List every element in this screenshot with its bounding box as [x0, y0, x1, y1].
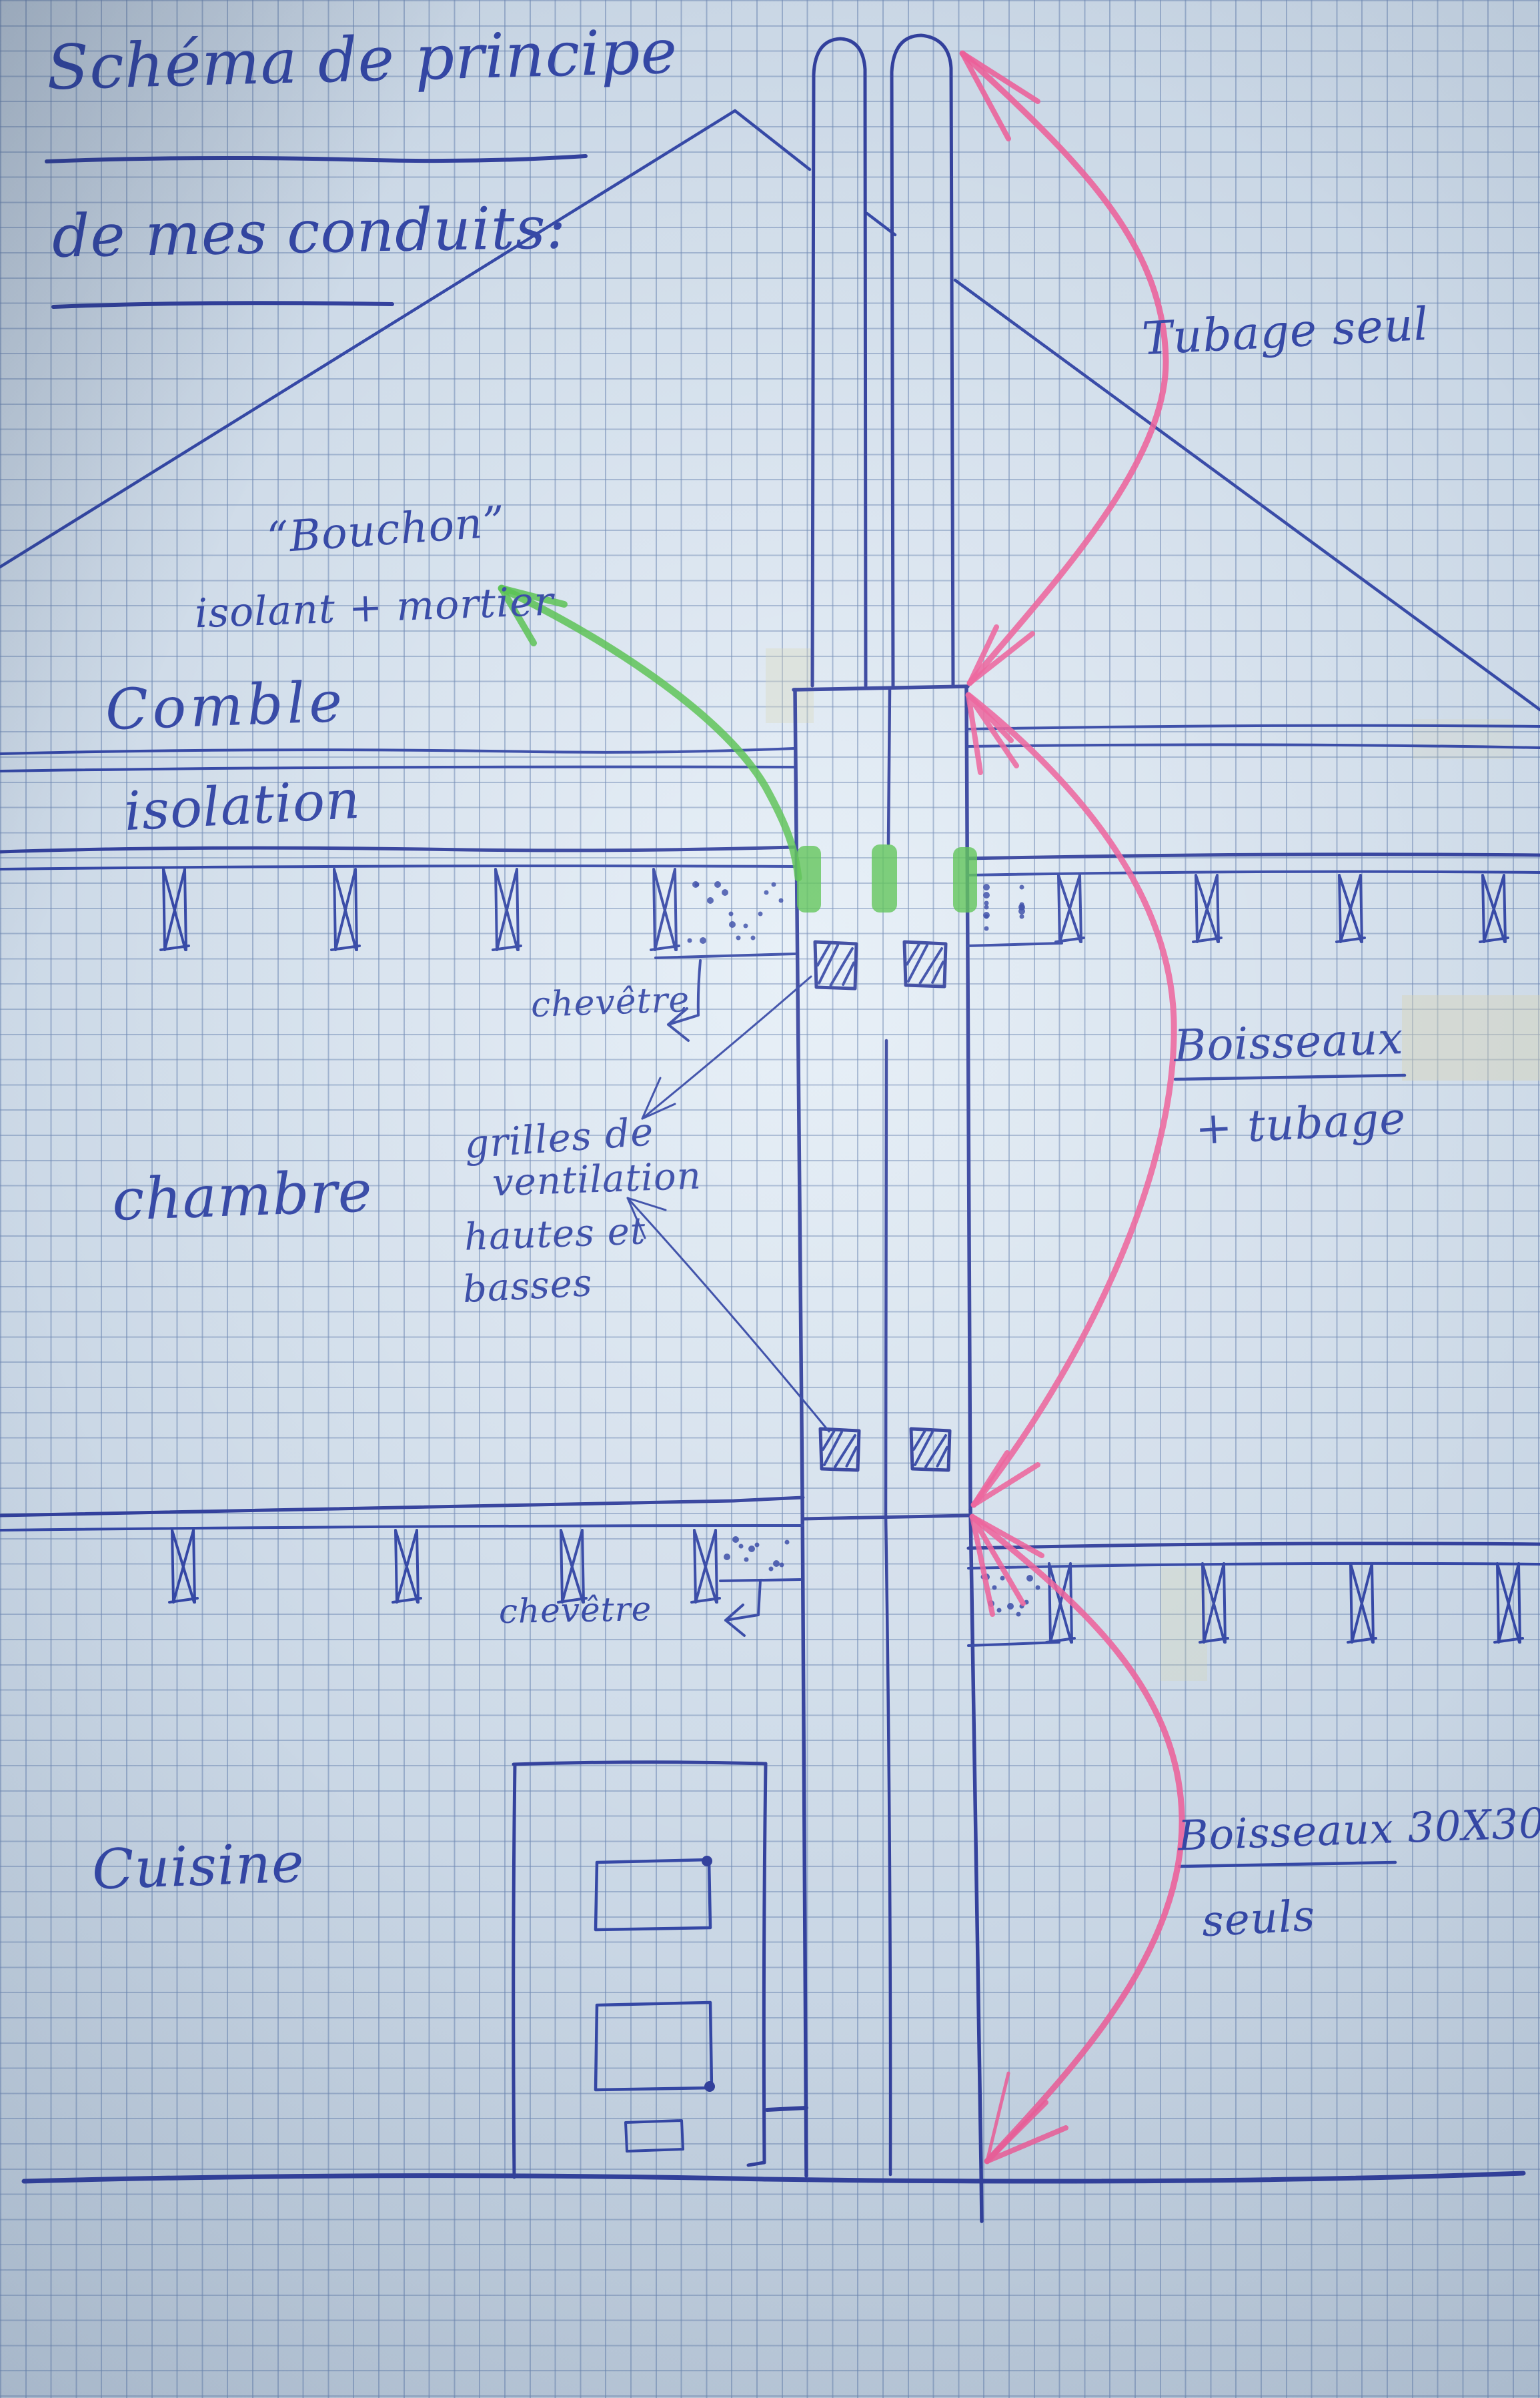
- label-comble: Comble: [105, 672, 347, 740]
- label-grilles-line4: basses: [462, 1264, 594, 1310]
- label-boisseaux: Boisseaux: [1173, 1015, 1404, 1069]
- green-arrow-bouchon: [502, 588, 798, 878]
- pink-arrow-boisseaux-tubage: [968, 695, 1174, 1505]
- chimney-stacks: [812, 35, 953, 686]
- label-chevetre-1: chevêtre: [530, 982, 690, 1024]
- kitchen-stove: [514, 1762, 806, 2177]
- pink-arrow-tubage-seul: [962, 53, 1166, 683]
- label-boisseaux-3030: Boisseaux 30X30: [1177, 1801, 1540, 1857]
- page-title-line2: de mes conduits:: [51, 197, 567, 267]
- ground-line: [24, 2173, 1523, 2181]
- green-bouchon-marks: [797, 844, 977, 913]
- label-grilles-line3: hautes et: [464, 1212, 646, 1257]
- label-isolation: isolation: [123, 772, 361, 840]
- pink-arrow-boisseaux-3030: [972, 1517, 1182, 2161]
- label-chambre: chambre: [111, 1161, 373, 1231]
- page-title-line1: Schéma de principe: [46, 20, 678, 101]
- label-chevetre-2: chevêtre: [499, 1592, 652, 1629]
- label-grilles-line2: ventilation: [492, 1157, 702, 1204]
- floor2-lines: [0, 1497, 1540, 1646]
- label-cuisine: Cuisine: [91, 1834, 305, 1899]
- floor1-lines: [0, 847, 1540, 958]
- chevetre2-hook-arrow: [726, 1580, 760, 1636]
- label-seuls: seuls: [1201, 1894, 1317, 1945]
- label-plus-tubage: + tubage: [1194, 1095, 1407, 1153]
- graph-paper-sheet: Schéma de principe de mes conduits: Tuba…: [0, 0, 1540, 2398]
